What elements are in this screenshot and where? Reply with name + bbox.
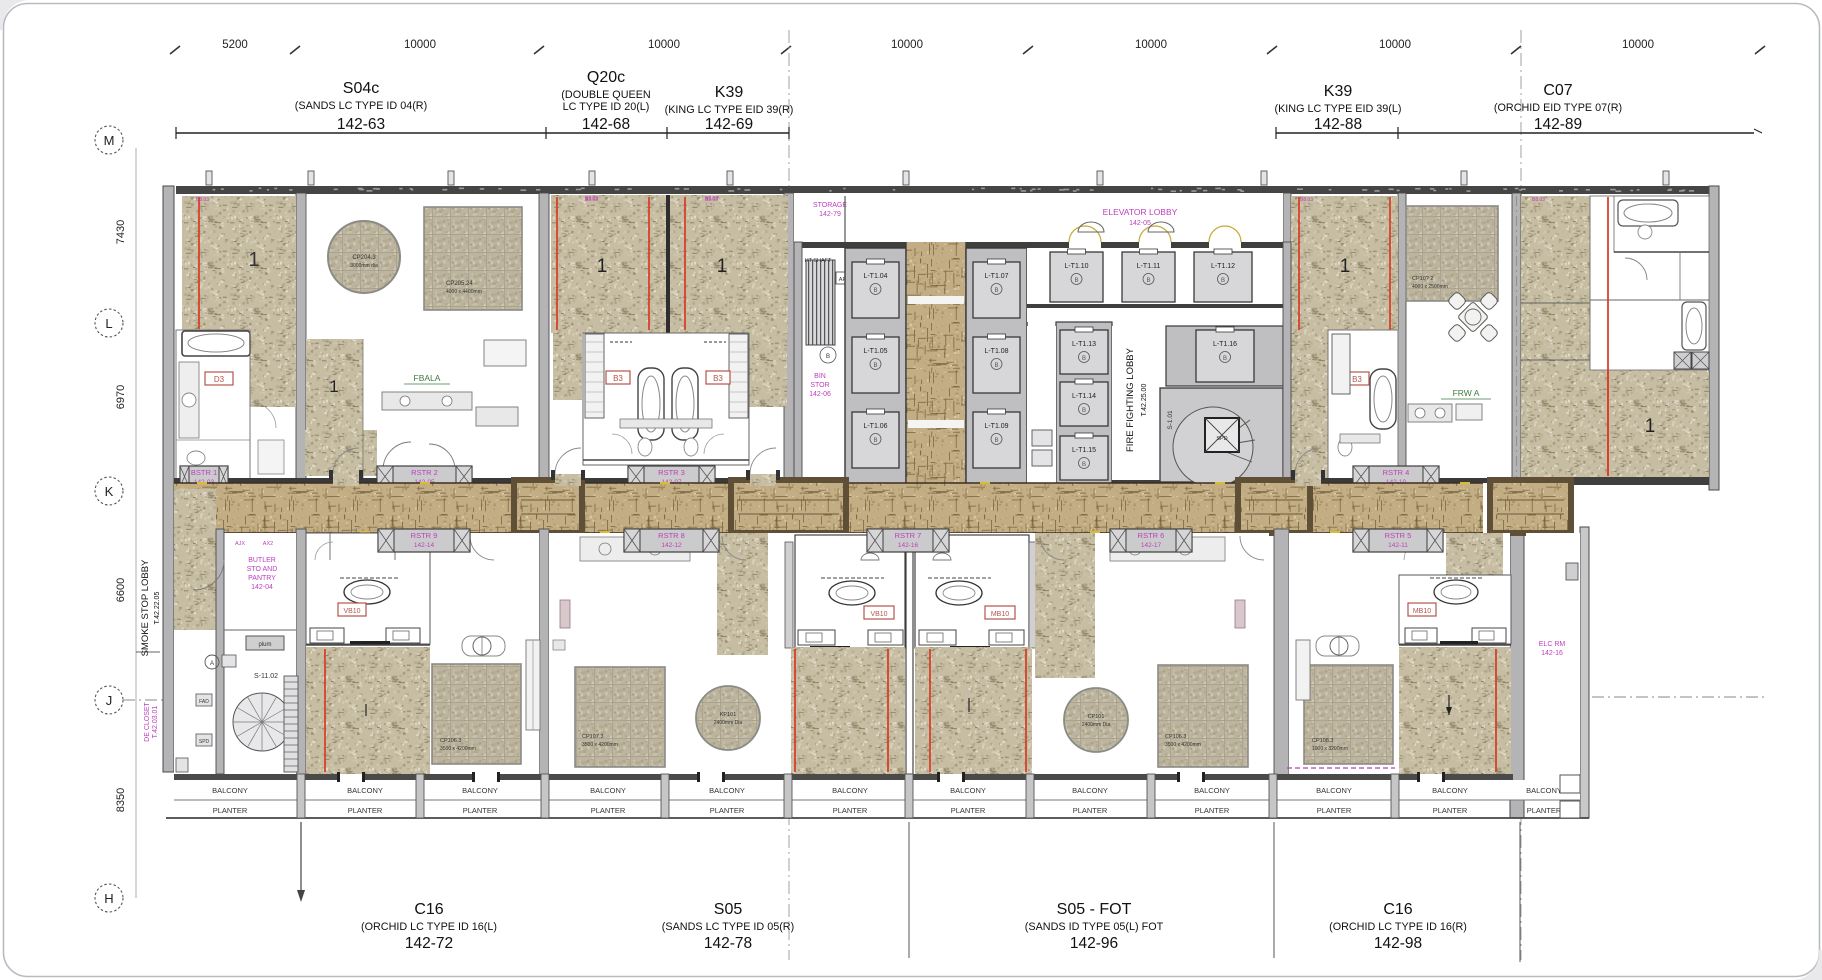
svg-text:B8.03: B8.03 [196, 197, 209, 203]
svg-text:Q20c: Q20c [587, 69, 625, 86]
svg-text:142-17: 142-17 [1141, 542, 1162, 549]
svg-text:10000: 10000 [1379, 39, 1411, 51]
svg-text:L-T1.11: L-T1.11 [1137, 263, 1161, 270]
svg-text:H: H [104, 891, 113, 906]
svg-text:142-98: 142-98 [1374, 935, 1422, 952]
svg-text:B: B [994, 288, 998, 294]
svg-text:BALCONY: BALCONY [462, 786, 498, 795]
svg-text:4000 x 4400mm: 4000 x 4400mm [446, 289, 482, 295]
svg-text:VB10: VB10 [343, 608, 360, 615]
svg-text:PLANTER: PLANTER [348, 806, 383, 815]
svg-text:8350: 8350 [115, 788, 127, 812]
svg-text:ELEVATOR LOBBY: ELEVATOR LOBBY [1103, 207, 1178, 217]
svg-text:1: 1 [1645, 416, 1656, 437]
svg-text:FIRE FIGHTING LOBBY: FIRE FIGHTING LOBBY [1125, 347, 1136, 452]
svg-text:CP205.24: CP205.24 [446, 281, 473, 287]
svg-text:3500 x 4200mm: 3500 x 4200mm [1165, 742, 1201, 748]
svg-text:A: A [210, 661, 214, 667]
svg-text:(ORCHID LC TYPE ID 16(L): (ORCHID LC TYPE ID 16(L) [361, 921, 497, 933]
svg-text:T.42.25.00: T.42.25.00 [1141, 384, 1148, 417]
svg-text:L-T1.16: L-T1.16 [1213, 341, 1237, 348]
svg-text:PLANTER: PLANTER [591, 806, 626, 815]
svg-text:3000mm dia: 3000mm dia [350, 263, 378, 269]
svg-text:SMOKE STOP LOBBY: SMOKE STOP LOBBY [140, 559, 151, 656]
svg-text:RSTR 3: RSTR 3 [658, 468, 685, 477]
svg-text:STORAGE: STORAGE [813, 202, 847, 209]
svg-text:B: B [994, 363, 998, 369]
svg-text:T.42.03.01: T.42.03.01 [152, 706, 159, 739]
svg-text:BALCONY: BALCONY [709, 786, 745, 795]
svg-text:142-05: 142-05 [1129, 220, 1151, 227]
svg-text:B3: B3 [613, 374, 623, 383]
svg-text:B8.03: B8.03 [1532, 197, 1545, 203]
svg-text:142-89: 142-89 [1534, 116, 1582, 133]
svg-text:3500 x 4200mm: 3500 x 4200mm [440, 746, 476, 752]
svg-text:10000: 10000 [891, 39, 923, 51]
svg-text:SPD: SPD [1216, 436, 1227, 442]
svg-text:BALCONY: BALCONY [1072, 786, 1108, 795]
svg-text:K39: K39 [715, 84, 744, 101]
svg-text:CP107.3: CP107.3 [582, 734, 603, 740]
svg-text:142-96: 142-96 [1070, 935, 1118, 952]
svg-text:K39: K39 [1324, 83, 1353, 100]
svg-text:RSTR 5: RSTR 5 [1385, 531, 1412, 540]
svg-text:MB10: MB10 [1413, 608, 1431, 615]
svg-text:RSTR 2: RSTR 2 [411, 468, 438, 477]
svg-text:PLANTER: PLANTER [1317, 806, 1352, 815]
svg-text:1: 1 [329, 377, 338, 396]
svg-text:(SANDS LC TYPE ID 04(R): (SANDS LC TYPE ID 04(R) [295, 100, 427, 112]
svg-text:C16: C16 [414, 901, 443, 918]
svg-text:FBALA: FBALA [414, 373, 441, 383]
svg-text:C16: C16 [1383, 901, 1412, 918]
svg-text:10000: 10000 [648, 39, 680, 51]
svg-text:B: B [1146, 278, 1150, 284]
svg-text:SPD: SPD [199, 739, 210, 745]
svg-text:PLANTER: PLANTER [1195, 806, 1230, 815]
svg-text:L-T1.12: L-T1.12 [1211, 263, 1235, 270]
svg-text:HT SHAFT: HT SHAFT [805, 258, 832, 264]
svg-text:C07: C07 [1543, 82, 1572, 99]
svg-text:1: 1 [248, 249, 259, 271]
svg-text:M: M [104, 133, 115, 148]
svg-text:BALCONY: BALCONY [590, 786, 626, 795]
svg-text:1: 1 [597, 256, 608, 277]
svg-text:BIN: BIN [814, 373, 826, 380]
svg-text:FRW A: FRW A [1453, 388, 1480, 398]
svg-text:142-04: 142-04 [251, 584, 273, 591]
svg-text:KP101: KP101 [720, 712, 737, 718]
svg-text:RSTR 7: RSTR 7 [895, 531, 922, 540]
svg-text:PLANTER: PLANTER [1073, 806, 1108, 815]
svg-text:L-T1.09: L-T1.09 [984, 423, 1008, 430]
svg-text:142-68: 142-68 [582, 116, 630, 133]
svg-text:142-06: 142-06 [809, 391, 831, 398]
svg-text:L-T1.14: L-T1.14 [1072, 393, 1096, 400]
svg-text:PANTRY: PANTRY [248, 575, 276, 582]
svg-text:BALCONY: BALCONY [1316, 786, 1352, 795]
svg-text:RSTR 9: RSTR 9 [411, 531, 438, 540]
svg-text:L-T1.15: L-T1.15 [1072, 447, 1096, 454]
svg-text:(DOUBLE QUEEN: (DOUBLE QUEEN [561, 89, 650, 101]
svg-text:L-T1.07: L-T1.07 [984, 273, 1008, 280]
svg-text:CP101: CP101 [1088, 714, 1105, 720]
svg-text:B8.03: B8.03 [705, 196, 718, 202]
svg-text:10000: 10000 [1135, 39, 1167, 51]
svg-text:L: L [105, 316, 112, 331]
svg-text:2400mm Dia: 2400mm Dia [714, 720, 743, 726]
svg-text:142-63: 142-63 [337, 116, 385, 133]
svg-text:BALCONY: BALCONY [1432, 786, 1468, 795]
svg-text:BALCONY: BALCONY [832, 786, 868, 795]
svg-text:VB10: VB10 [870, 611, 887, 618]
svg-text:L-T1.10: L-T1.10 [1064, 263, 1088, 270]
svg-text:(ORCHID EID TYPE 07(R): (ORCHID EID TYPE 07(R) [1494, 102, 1622, 114]
svg-text:1000 x 3200mm: 1000 x 3200mm [1312, 746, 1348, 752]
svg-text:1: 1 [717, 256, 728, 277]
svg-text:B: B [1223, 356, 1227, 362]
svg-text:(SANDS LC TYPE ID 05(R): (SANDS LC TYPE ID 05(R) [662, 921, 794, 933]
svg-text:B: B [1074, 278, 1078, 284]
svg-text:S05 - FOT: S05 - FOT [1057, 901, 1132, 918]
svg-text:142-69: 142-69 [705, 116, 753, 133]
svg-text:B8.03: B8.03 [585, 196, 598, 202]
svg-text:B: B [1221, 278, 1225, 284]
svg-text:L-T1.13: L-T1.13 [1072, 341, 1096, 348]
svg-text:3500 x 4200mm: 3500 x 4200mm [582, 742, 618, 748]
svg-text:CP10? 2: CP10? 2 [1412, 276, 1433, 282]
svg-text:STO AND: STO AND [247, 566, 278, 573]
svg-text:L-T1.08: L-T1.08 [984, 348, 1008, 355]
svg-text:142-16: 142-16 [1541, 650, 1563, 657]
svg-text:B: B [826, 354, 830, 360]
svg-text:B3: B3 [1352, 375, 1362, 384]
svg-text:142-72: 142-72 [405, 935, 453, 952]
svg-text:B: B [873, 438, 877, 444]
svg-text:BALCONY: BALCONY [1194, 786, 1230, 795]
svg-text:L-T1.04: L-T1.04 [863, 273, 887, 280]
svg-text:S05: S05 [714, 901, 743, 918]
svg-text:PLANTER: PLANTER [1527, 806, 1562, 815]
svg-text:2400mm Dia: 2400mm Dia [1082, 722, 1111, 728]
svg-text:(KING LC TYPE EID 39(L): (KING LC TYPE EID 39(L) [1274, 103, 1401, 115]
svg-text:FAD: FAD [199, 699, 209, 705]
svg-text:LC TYPE ID 20(L): LC TYPE ID 20(L) [563, 101, 650, 113]
svg-text:S04c: S04c [343, 80, 379, 97]
svg-text:B: B [873, 363, 877, 369]
svg-text:BSTR 1: BSTR 1 [191, 468, 217, 477]
svg-text:PLANTER: PLANTER [710, 806, 745, 815]
svg-text:142-79: 142-79 [819, 211, 841, 218]
svg-text:CP204.3: CP204.3 [352, 255, 376, 261]
svg-text:142-16: 142-16 [898, 542, 919, 549]
svg-text:BUTLER: BUTLER [248, 557, 276, 564]
svg-text:PLANTER: PLANTER [833, 806, 868, 815]
svg-text:PLANTER: PLANTER [1433, 806, 1468, 815]
svg-text:1: 1 [1340, 256, 1351, 277]
svg-text:MB10: MB10 [991, 611, 1009, 618]
svg-text:142-14: 142-14 [414, 542, 435, 549]
svg-text:PLANTER: PLANTER [463, 806, 498, 815]
svg-text:RSTR 6: RSTR 6 [1138, 531, 1165, 540]
svg-text:STOR: STOR [810, 382, 829, 389]
svg-text:PLANTER: PLANTER [213, 806, 248, 815]
svg-text:CP108.3: CP108.3 [1312, 738, 1333, 744]
svg-text:L-T1.06: L-T1.06 [863, 423, 887, 430]
svg-text:142-11: 142-11 [1388, 542, 1408, 549]
svg-text:(KING LC TYPE EID 39(R): (KING LC TYPE EID 39(R) [665, 104, 794, 116]
svg-text:(ORCHID LC TYPE ID 16(R): (ORCHID LC TYPE ID 16(R) [1329, 921, 1467, 933]
svg-text:B: B [994, 438, 998, 444]
svg-text:10000: 10000 [1622, 39, 1654, 51]
svg-text:RSTR 4: RSTR 4 [1383, 468, 1410, 477]
svg-text:BALCONY: BALCONY [347, 786, 383, 795]
svg-text:6970: 6970 [115, 385, 127, 409]
svg-text:S-11.02: S-11.02 [254, 673, 278, 680]
svg-text:PLANTER: PLANTER [951, 806, 986, 815]
svg-text:10000: 10000 [404, 39, 436, 51]
svg-text:BALCONY: BALCONY [1526, 786, 1562, 795]
svg-text:T.42.22.05: T.42.22.05 [154, 592, 161, 625]
svg-text:plum: plum [258, 642, 271, 648]
svg-text:ELC RM: ELC RM [1539, 641, 1566, 648]
svg-text:B: B [1082, 408, 1086, 414]
svg-text:B3: B3 [713, 374, 723, 383]
svg-text:142-78: 142-78 [704, 935, 752, 952]
svg-text:J: J [106, 693, 113, 708]
svg-text:6600: 6600 [115, 578, 127, 602]
svg-text:AX2: AX2 [263, 541, 273, 547]
svg-text:BALCONY: BALCONY [950, 786, 986, 795]
svg-text:CP106.3: CP106.3 [440, 738, 461, 744]
svg-text:RSTR 8: RSTR 8 [658, 531, 685, 540]
svg-text:4000 x 2500mm: 4000 x 2500mm [1412, 284, 1448, 290]
svg-text:B: B [1082, 356, 1086, 362]
svg-text:B: B [1082, 462, 1086, 468]
svg-text:5200: 5200 [222, 39, 248, 51]
svg-text:CP106.3: CP106.3 [1165, 734, 1186, 740]
svg-text:K: K [105, 484, 114, 499]
svg-text:(SANDS ID TYPE 05(L) FOT: (SANDS ID TYPE 05(L) FOT [1025, 921, 1164, 933]
svg-text:B8.03: B8.03 [1300, 197, 1313, 203]
svg-text:D3: D3 [214, 375, 225, 384]
svg-text:AJX: AJX [235, 541, 245, 547]
svg-text:S-1.01: S-1.01 [1167, 410, 1174, 430]
svg-text:B: B [873, 288, 877, 294]
svg-text:L-T1.05: L-T1.05 [863, 348, 887, 355]
svg-text:DE CLOSET: DE CLOSET [144, 701, 151, 741]
svg-text:142-12: 142-12 [661, 542, 682, 549]
svg-text:7430: 7430 [115, 220, 127, 244]
svg-text:BALCONY: BALCONY [212, 786, 248, 795]
svg-text:142-88: 142-88 [1314, 116, 1362, 133]
